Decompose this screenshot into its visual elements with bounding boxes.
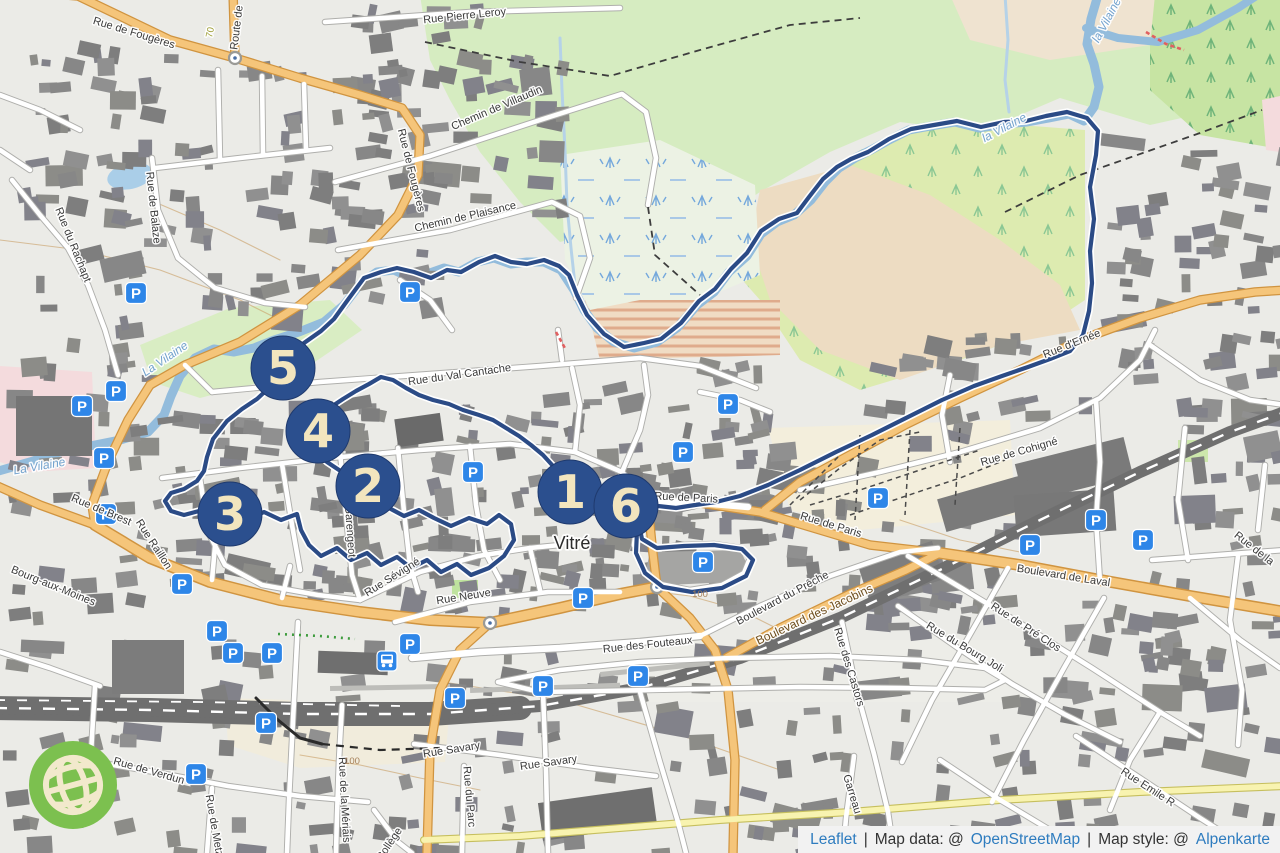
svg-text:P: P [191,767,201,784]
svg-text:P: P [101,507,111,524]
parking-icon: P [172,574,193,595]
parking-icon: P [186,764,207,785]
alpenkarte-link[interactable]: Alpenkarte [1196,831,1270,849]
svg-text:P: P [228,646,238,663]
parking-icon: P [94,448,115,469]
parking-icon: P [533,676,554,697]
parking-icon: P [262,643,283,664]
svg-text:P: P [633,669,643,686]
parking-icon: P [207,621,228,642]
attribution-divider: | [864,831,868,849]
svg-text:P: P [873,491,883,508]
svg-text:P: P [131,286,141,303]
globe-logo [23,735,123,835]
parking-icon: P [400,634,421,655]
svg-text:P: P [678,445,688,462]
svg-text:6: 6 [610,479,642,533]
waypoint-marker-2[interactable]: 2 [336,454,400,518]
svg-text:3: 3 [214,487,246,541]
parking-icon: P [718,394,739,415]
map-style-prefix: Map style: @ [1098,831,1189,849]
parking-icon: P [573,588,594,609]
parking-icon: P [72,396,93,417]
waypoint-marker-1[interactable]: 1 [538,460,602,524]
svg-text:P: P [212,624,222,641]
svg-text:70: 70 [204,26,217,39]
street-label: Rue du Rachapt [52,206,93,284]
svg-text:P: P [405,637,415,654]
map-viewport[interactable]: PPPPPPPPPPPPPPPPPPPPPPPPP Rue Pierre Ler… [0,0,1280,853]
svg-text:2: 2 [352,459,384,513]
roundabout [484,617,496,629]
parking-icon: P [628,666,649,687]
parking-icon: P [1086,510,1107,531]
svg-text:5: 5 [267,341,299,395]
waypoint-marker-4[interactable]: 4 [286,399,350,463]
map-data-prefix: Map data: @ [875,831,964,849]
parking-icon: P [693,552,714,573]
svg-text:P: P [261,716,271,733]
svg-text:P: P [1091,513,1101,530]
parking-icon: P [126,283,147,304]
waypoint-marker-5[interactable]: 5 [251,336,315,400]
svg-text:1: 1 [554,465,586,519]
parking-icon: P [673,442,694,463]
svg-text:Rue du Rachapt: Rue du Rachapt [52,206,93,284]
svg-text:P: P [723,397,733,414]
attribution-bar: Leaflet | Map data: @ OpenStreetMap | Ma… [798,826,1280,853]
parking-icon: P [256,713,277,734]
svg-text:P: P [538,679,548,696]
attribution-divider: | [1087,831,1091,849]
svg-text:P: P [578,591,588,608]
svg-text:P: P [698,555,708,572]
waypoint-marker-3[interactable]: 3 [198,482,262,546]
svg-text:P: P [450,691,460,708]
svg-text:P: P [267,646,277,663]
svg-text:P: P [177,577,187,594]
parking-icon: P [106,381,127,402]
map-svg[interactable]: PPPPPPPPPPPPPPPPPPPPPPPPP Rue Pierre Ler… [0,0,1280,853]
parking-icon: P [223,643,244,664]
parking-icon: P [1133,530,1154,551]
bus-stop-icon [377,651,397,671]
parking-icon: P [445,688,466,709]
svg-text:P: P [99,451,109,468]
svg-text:P: P [1025,538,1035,555]
svg-text:P: P [77,399,87,416]
parking-icon: P [96,504,117,525]
leaflet-link[interactable]: Leaflet [810,831,857,849]
street-label: 70 [204,26,217,39]
waypoint-marker-6[interactable]: 6 [594,474,658,538]
openstreetmap-link[interactable]: OpenStreetMap [971,831,1080,849]
parking-icon: P [1020,535,1041,556]
parking-icon: P [463,462,484,483]
svg-text:4: 4 [302,404,334,458]
svg-text:P: P [1138,533,1148,550]
svg-text:P: P [111,384,121,401]
svg-text:P: P [468,465,478,482]
parking-icon: P [400,282,421,303]
roundabout [229,52,241,64]
svg-text:P: P [405,285,415,302]
parking-icon: P [868,488,889,509]
